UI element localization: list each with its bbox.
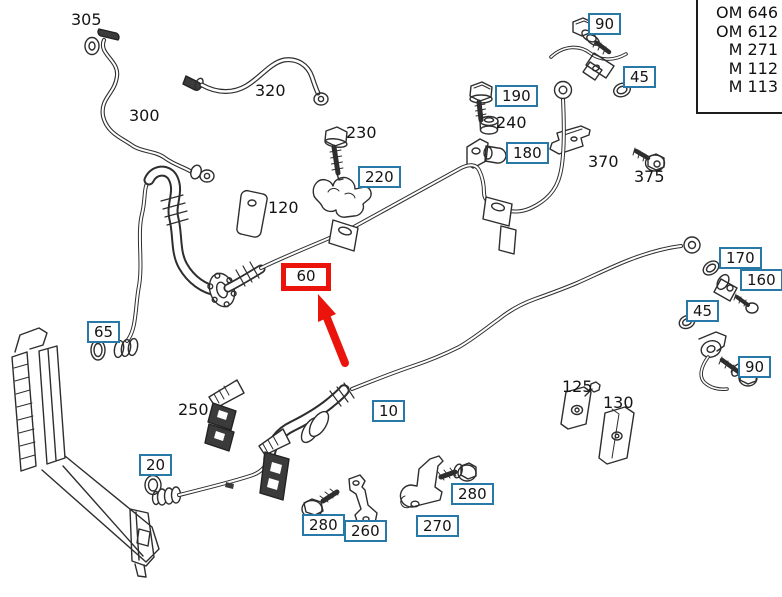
part-label-190[interactable]: 190 [495, 85, 538, 107]
engine-codes-list: OM 646OM 612M 271M 112M 113 [698, 4, 778, 97]
part-label-45[interactable]: 45 [686, 300, 719, 322]
part-label-270[interactable]: 270 [416, 515, 459, 537]
parts-diagram-page: 3059045320300230190240180370375220120601… [0, 0, 782, 597]
engine-codes-box: OM 646OM 612M 271M 112M 113 [696, 0, 782, 114]
part-label-45[interactable]: 45 [623, 66, 656, 88]
part-label-120: 120 [268, 198, 299, 217]
part-label-10[interactable]: 10 [372, 400, 405, 422]
part-label-220[interactable]: 220 [358, 166, 401, 188]
part-label-180[interactable]: 180 [506, 142, 549, 164]
part-label-130: 130 [603, 393, 634, 412]
part-label-60[interactable]: 60 [281, 263, 331, 291]
part-label-240: 240 [496, 113, 527, 132]
part-label-90[interactable]: 90 [738, 356, 771, 378]
part-label-20[interactable]: 20 [139, 454, 172, 476]
engine-code: M 271 [698, 41, 778, 60]
part-label-65[interactable]: 65 [87, 321, 120, 343]
part-label-160[interactable]: 160 [740, 269, 782, 291]
labels-layer: 3059045320300230190240180370375220120601… [0, 0, 782, 597]
part-label-250: 250 [178, 400, 209, 419]
part-label-280[interactable]: 280 [451, 483, 494, 505]
engine-code: OM 612 [698, 23, 778, 42]
part-label-125: 125 [562, 377, 593, 396]
part-label-260[interactable]: 260 [344, 520, 387, 542]
engine-code: M 113 [698, 78, 778, 97]
part-label-370: 370 [588, 152, 619, 171]
part-label-305: 305 [71, 10, 102, 29]
engine-code: OM 646 [698, 4, 778, 23]
part-label-230: 230 [346, 123, 377, 142]
part-label-170[interactable]: 170 [719, 247, 762, 269]
part-label-375: 375 [634, 167, 665, 186]
part-label-320: 320 [255, 81, 286, 100]
part-label-280[interactable]: 280 [302, 514, 345, 536]
part-label-300: 300 [129, 106, 160, 125]
engine-code: M 112 [698, 60, 778, 79]
part-label-90[interactable]: 90 [588, 13, 621, 35]
